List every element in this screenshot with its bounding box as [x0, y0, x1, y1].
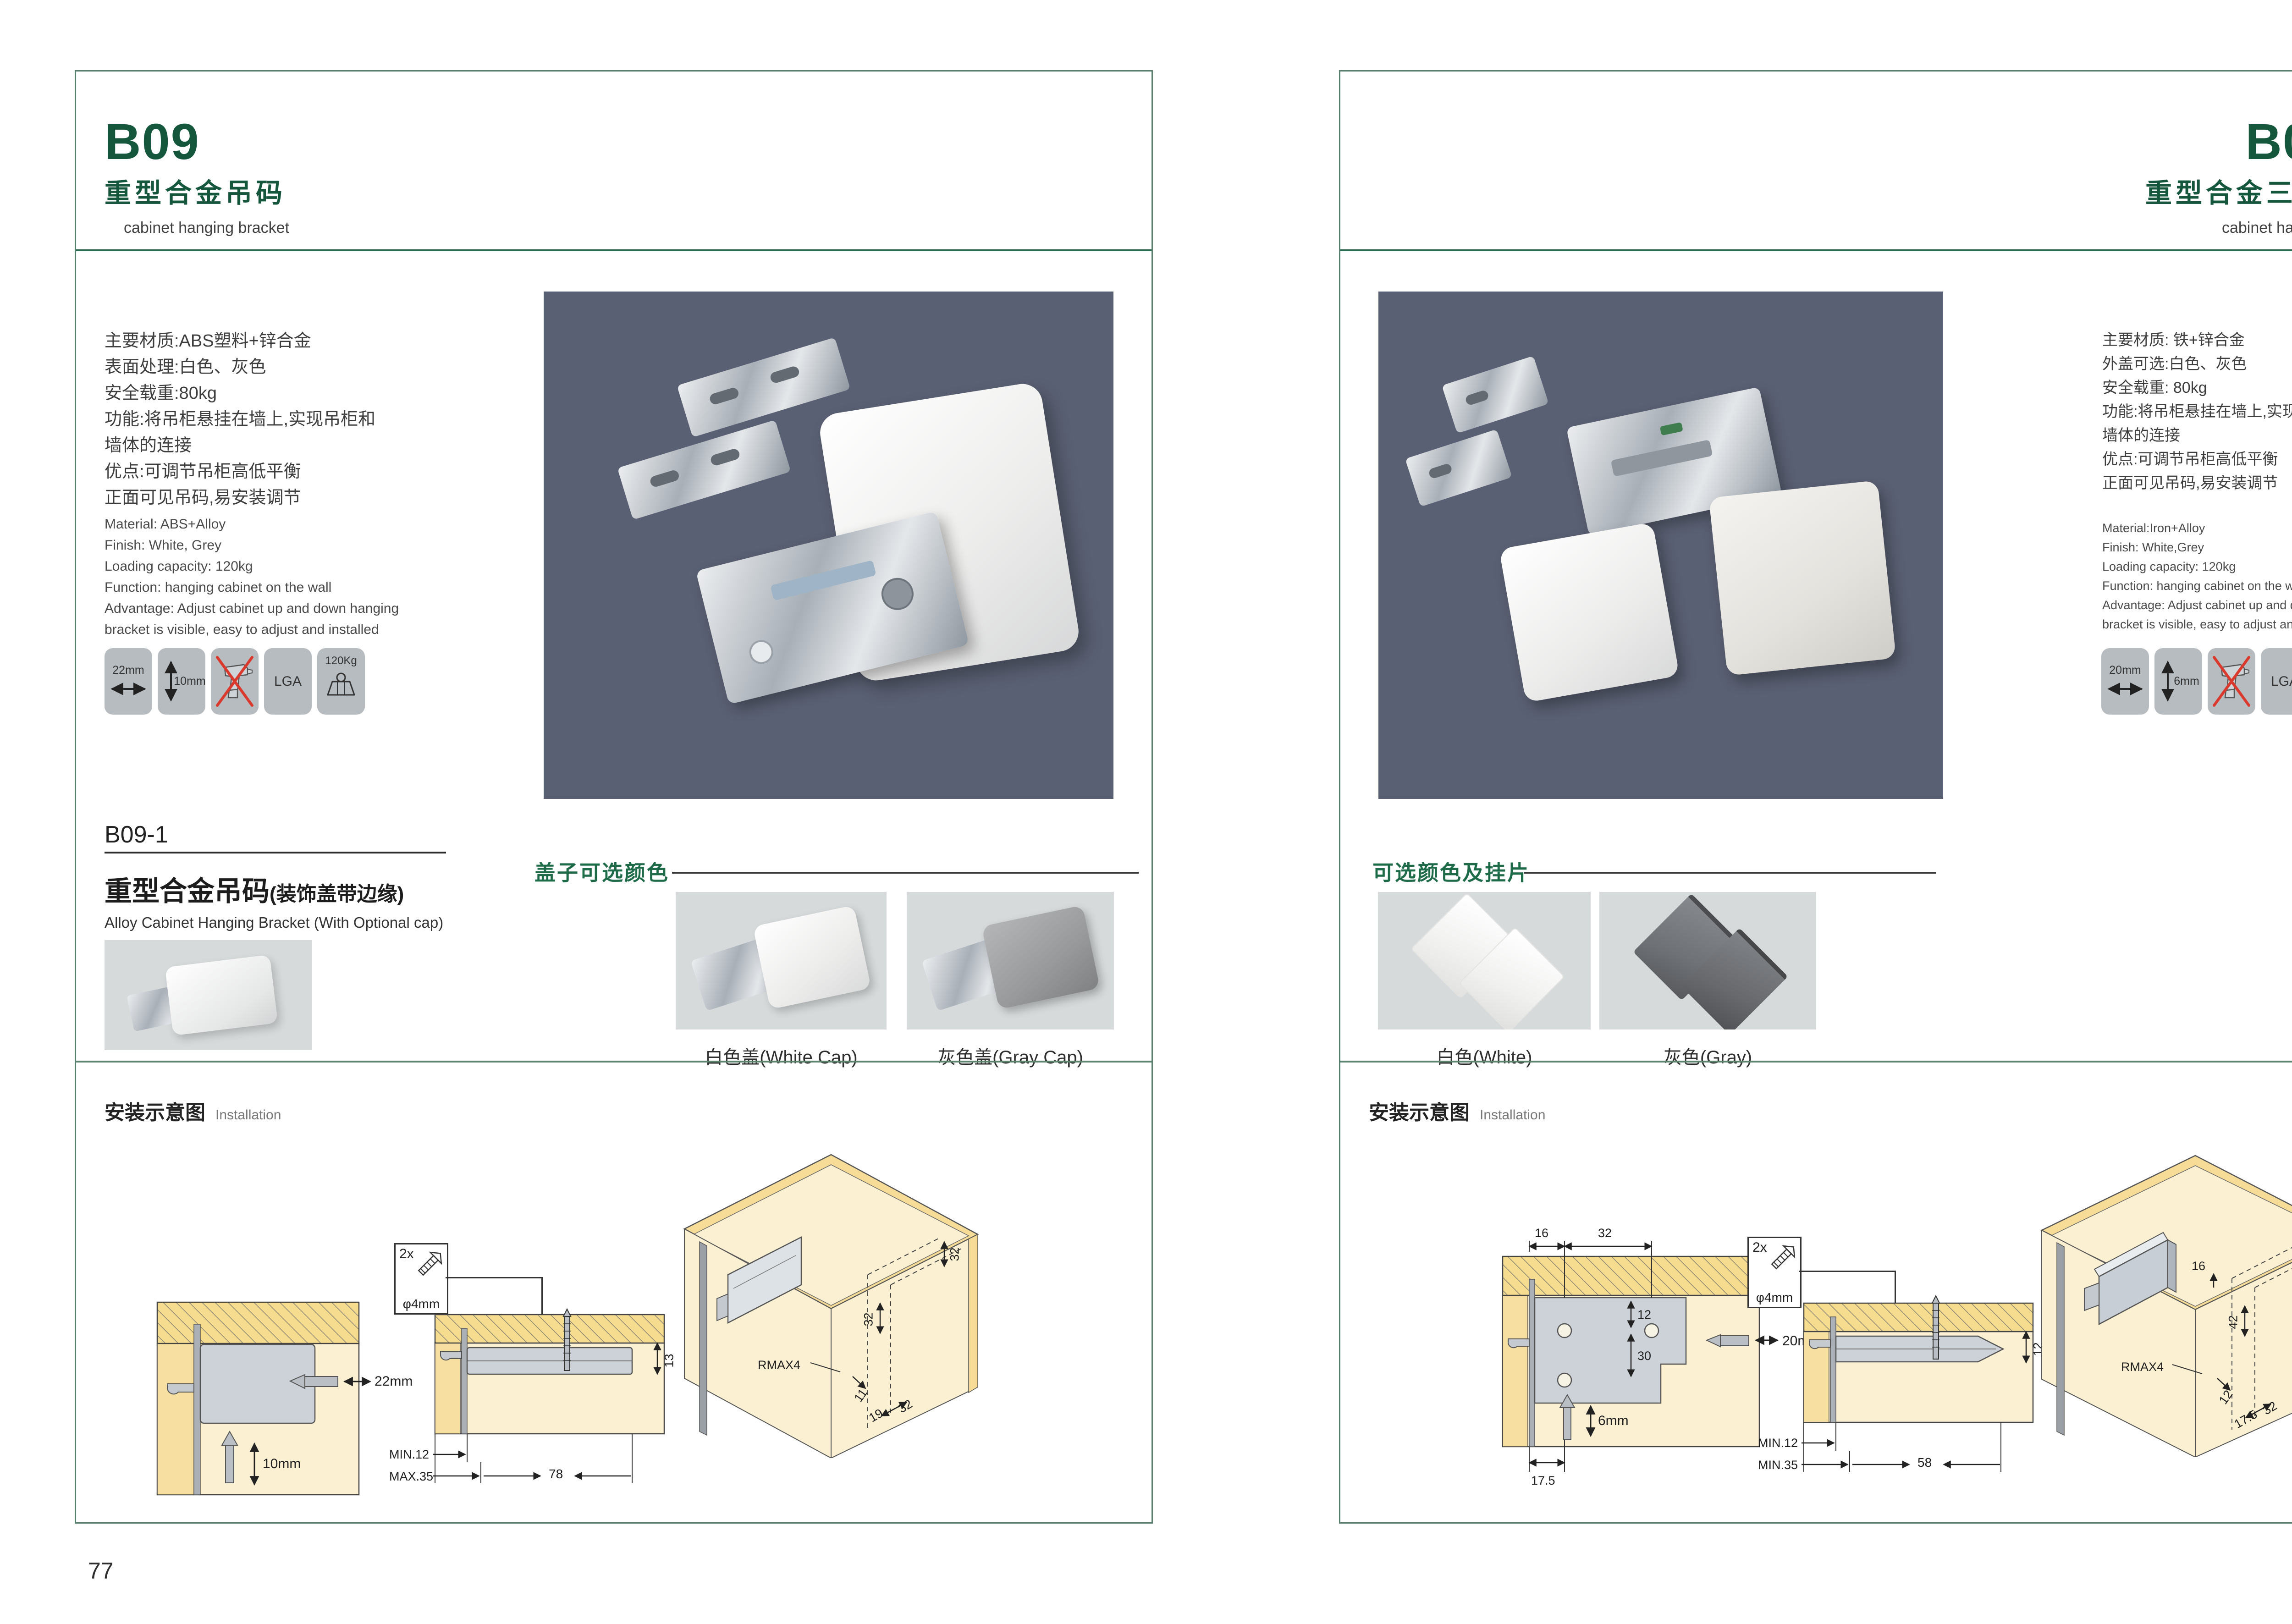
install-diagram-cabinet: 16 12 42 RMAX4 12 17.5 32	[2030, 1136, 2292, 1457]
screw-count: 2x	[399, 1246, 414, 1262]
width-spec-tile: 20mm	[2101, 648, 2149, 715]
page-number-left: 77	[88, 1558, 114, 1584]
weight-icon	[325, 671, 357, 698]
header-divider	[76, 249, 1152, 251]
dim-b: 32	[1598, 1226, 1612, 1240]
spec-line: 优点:可调节吊柜高低平衡	[2102, 447, 2292, 471]
diagram-drawing	[673, 1137, 989, 1458]
dim-offset-top: 32	[948, 1247, 962, 1261]
no-drill-icon	[211, 648, 259, 715]
certification-label: LGA	[2261, 674, 2292, 689]
dim-g: 17.5	[1531, 1474, 1555, 1488]
spec-line: Material: ABS+Alloy	[105, 514, 399, 535]
sub-title-zh: 重型合金吊码(装饰盖带边缘)	[105, 869, 404, 909]
spec-line: Advantage: Adjust cabinet up and down ha…	[2102, 595, 2292, 615]
bracket-body	[696, 511, 970, 705]
dim-a: 16	[1535, 1226, 1548, 1240]
callout-line	[1799, 1271, 1896, 1272]
cap-options-rule	[1524, 872, 1936, 874]
installation-heading-en: Installation	[1480, 1107, 1545, 1123]
white-cap-photo	[676, 892, 887, 1029]
screw-icon	[414, 1247, 446, 1283]
dim-offset-mid: 32	[862, 1312, 876, 1326]
install-diagram-front: 22mm 10mm	[139, 1266, 405, 1504]
dim-d: 30	[1637, 1349, 1651, 1363]
sub-title-en: Alloy Cabinet Hanging Bracket (With Opti…	[105, 914, 443, 931]
spec-line: 墙体的连接	[2102, 424, 2292, 447]
dim-f: 6mm	[1598, 1413, 1629, 1429]
dim-max: MIN.35	[1758, 1458, 1798, 1472]
product-title-zh: 重型合金三孔吊码	[2145, 171, 2292, 210]
width-value: 20mm	[2101, 664, 2149, 677]
gray-cap-photo	[907, 892, 1114, 1029]
dim-radius: RMAX4	[2121, 1360, 2164, 1374]
dim-min: MIN.12	[1758, 1436, 1798, 1450]
spec-line: Loading capacity: 120kg	[2102, 557, 2292, 576]
white-option-photo	[1378, 892, 1591, 1029]
dim-c: 42	[2226, 1315, 2241, 1329]
product-title-zh: 重型合金吊码	[105, 171, 286, 210]
spec-line: 主要材质:ABS塑料+锌合金	[105, 328, 375, 354]
spec-line: 墙体的连接	[105, 433, 375, 459]
product-code: B09	[105, 113, 200, 171]
installation-heading-zh: 安装示意图	[1369, 1096, 1470, 1125]
cap-options-rule	[672, 872, 1139, 874]
product-title-en: cabinet hanging bracket	[2222, 219, 2292, 237]
product-title-en: cabinet hanging bracket	[124, 219, 289, 237]
install-diagram-cabinet: 32 32 RMAX4 11 19 32	[673, 1137, 989, 1458]
cap-label: 白色(White)	[1378, 1042, 1591, 1069]
load-capacity-tile: 120Kg	[317, 648, 365, 715]
installation-heading: 安装示意图 Installation	[105, 1096, 281, 1125]
hanging-plate	[1442, 356, 1549, 434]
spec-line: Finish: White,Grey	[2102, 538, 2292, 557]
spec-line: Advantage: Adjust cabinet up and down ha…	[105, 598, 399, 619]
product-photo-main	[1378, 292, 1943, 799]
spec-line: 表面处理:白色、灰色	[105, 354, 375, 380]
depth-value: 6mm	[2163, 675, 2210, 688]
certification-tile: LGA	[264, 648, 312, 715]
spec-line: bracket is visible, easy to adjust and i…	[2102, 615, 2292, 634]
cap-label: 灰色(Gray)	[1599, 1042, 1816, 1069]
header-divider	[1340, 249, 2292, 251]
installation-heading: 安装示意图 Installation	[1369, 1096, 1545, 1125]
cap-options-heading: 盖子可选颜色	[534, 856, 669, 886]
no-drill-tile	[2208, 648, 2255, 715]
dim-length: 78	[549, 1467, 563, 1481]
depth-spec-tile: 6mm	[2154, 648, 2202, 715]
spec-line: 正面可见吊码,易安装调节	[105, 485, 375, 511]
certification-label: LGA	[264, 674, 312, 689]
spec-line: 安全载重:80kg	[105, 380, 375, 407]
gray-option-photo	[1599, 892, 1816, 1029]
sub-title-zh-main: 重型合金吊码	[105, 876, 270, 907]
product-code: B09-3	[2245, 113, 2292, 171]
specs-en: Material: ABS+Alloy Finish: White, Grey …	[105, 514, 399, 640]
dim-c: 12	[1637, 1308, 1651, 1322]
spec-line: 优点:可调节吊柜高低平衡	[105, 459, 375, 485]
hanging-plate	[1405, 429, 1512, 507]
cap-label: 灰色盖(Gray Cap)	[907, 1042, 1114, 1069]
page-left: B09 重型合金吊码 cabinet hanging bracket 主要材质:…	[75, 70, 1153, 1524]
catalog-spread: B09 重型合金吊码 cabinet hanging bracket 主要材质:…	[0, 0, 2292, 1624]
dim-radius: RMAX4	[758, 1358, 800, 1372]
screw-count: 2x	[1752, 1240, 1767, 1255]
product-photo-main	[544, 292, 1113, 799]
width-spec-tile: 22mm	[105, 648, 152, 715]
spec-line: 功能:将吊柜悬挂在墙上,实现吊柜和	[2102, 400, 2292, 424]
dim-max: MAX.35	[389, 1470, 433, 1484]
certification-tile: LGA	[2261, 648, 2292, 715]
installation-heading-zh: 安装示意图	[105, 1096, 205, 1125]
spec-line: 外盖可选:白色、灰色	[2102, 352, 2292, 376]
no-drill-tile	[211, 648, 259, 715]
callout-line	[446, 1277, 543, 1278]
dim-min: MIN.12	[389, 1448, 429, 1462]
installation-heading-en: Installation	[215, 1107, 281, 1123]
sub-product-code: B09-1	[105, 821, 168, 848]
section-divider	[1340, 1061, 2292, 1062]
spec-line: Function: hanging cabinet on the wall	[105, 577, 399, 598]
white-cap	[753, 905, 871, 1010]
cap-label: 白色盖(White Cap)	[676, 1042, 887, 1069]
sub-product-photo	[105, 940, 312, 1050]
spec-line: 主要材质: 铁+锌合金	[2102, 328, 2292, 352]
diagram-drawing	[1758, 1285, 2051, 1491]
feature-icons: 22mm 10mm LGA 120Kg	[105, 648, 365, 715]
depth-value: 10mm	[166, 675, 214, 688]
screw-icon	[1767, 1241, 1799, 1277]
width-value: 22mm	[105, 664, 152, 677]
specs-zh: 主要材质:ABS塑料+锌合金 表面处理:白色、灰色 安全载重:80kg 功能:将…	[105, 328, 375, 511]
spec-line: 功能:将吊柜悬挂在墙上,实现吊柜和	[105, 407, 375, 433]
load-value: 120Kg	[317, 655, 365, 667]
spec-line: Finish: White, Grey	[105, 535, 399, 556]
spec-line: Material:Iron+Alloy	[2102, 518, 2292, 538]
sub-divider	[105, 852, 446, 853]
install-diagram-side: 13 MIN.12 MAX.35 78	[389, 1296, 683, 1503]
spec-line: 安全载重: 80kg	[2102, 376, 2292, 400]
specs-zh: 主要材质: 铁+锌合金 外盖可选:白色、灰色 安全载重: 80kg 功能:将吊柜…	[2102, 328, 2292, 495]
white-cover	[1499, 522, 1680, 703]
rail-plate	[617, 420, 791, 520]
specs-en: Material:Iron+Alloy Finish: White,Grey L…	[2102, 518, 2292, 634]
feature-icons: 20mm 6mm LGA 120Kg	[2101, 648, 2292, 715]
spec-line: 正面可见吊码,易安装调节	[2102, 471, 2292, 495]
page-right: B09-3 重型合金三孔吊码 cabinet hanging bracket 主…	[1339, 70, 2292, 1524]
dim-length: 58	[1917, 1455, 1932, 1470]
dim-a: 16	[2192, 1259, 2205, 1273]
sub-title-zh-note: (装饰盖带边缘)	[270, 883, 404, 905]
white-cap	[165, 955, 278, 1036]
horizontal-arrow-icon	[108, 682, 149, 696]
install-diagram-side: 12 MIN.12 MIN.35 58	[1758, 1285, 2051, 1491]
horizontal-arrow-icon	[2105, 682, 2145, 696]
dim-depth: 10mm	[263, 1456, 301, 1472]
cap-options-heading: 可选颜色及挂片	[1372, 856, 1530, 886]
gray-cap	[981, 905, 1100, 1010]
cover-cap	[1709, 480, 1896, 676]
spec-line: Loading capacity: 120kg	[105, 556, 399, 577]
spec-line: bracket is visible, easy to adjust and i…	[105, 619, 399, 640]
no-drill-icon	[2208, 648, 2255, 715]
depth-spec-tile: 10mm	[158, 648, 205, 715]
section-divider	[76, 1061, 1152, 1062]
spec-line: Function: hanging cabinet on the wall	[2102, 576, 2292, 595]
